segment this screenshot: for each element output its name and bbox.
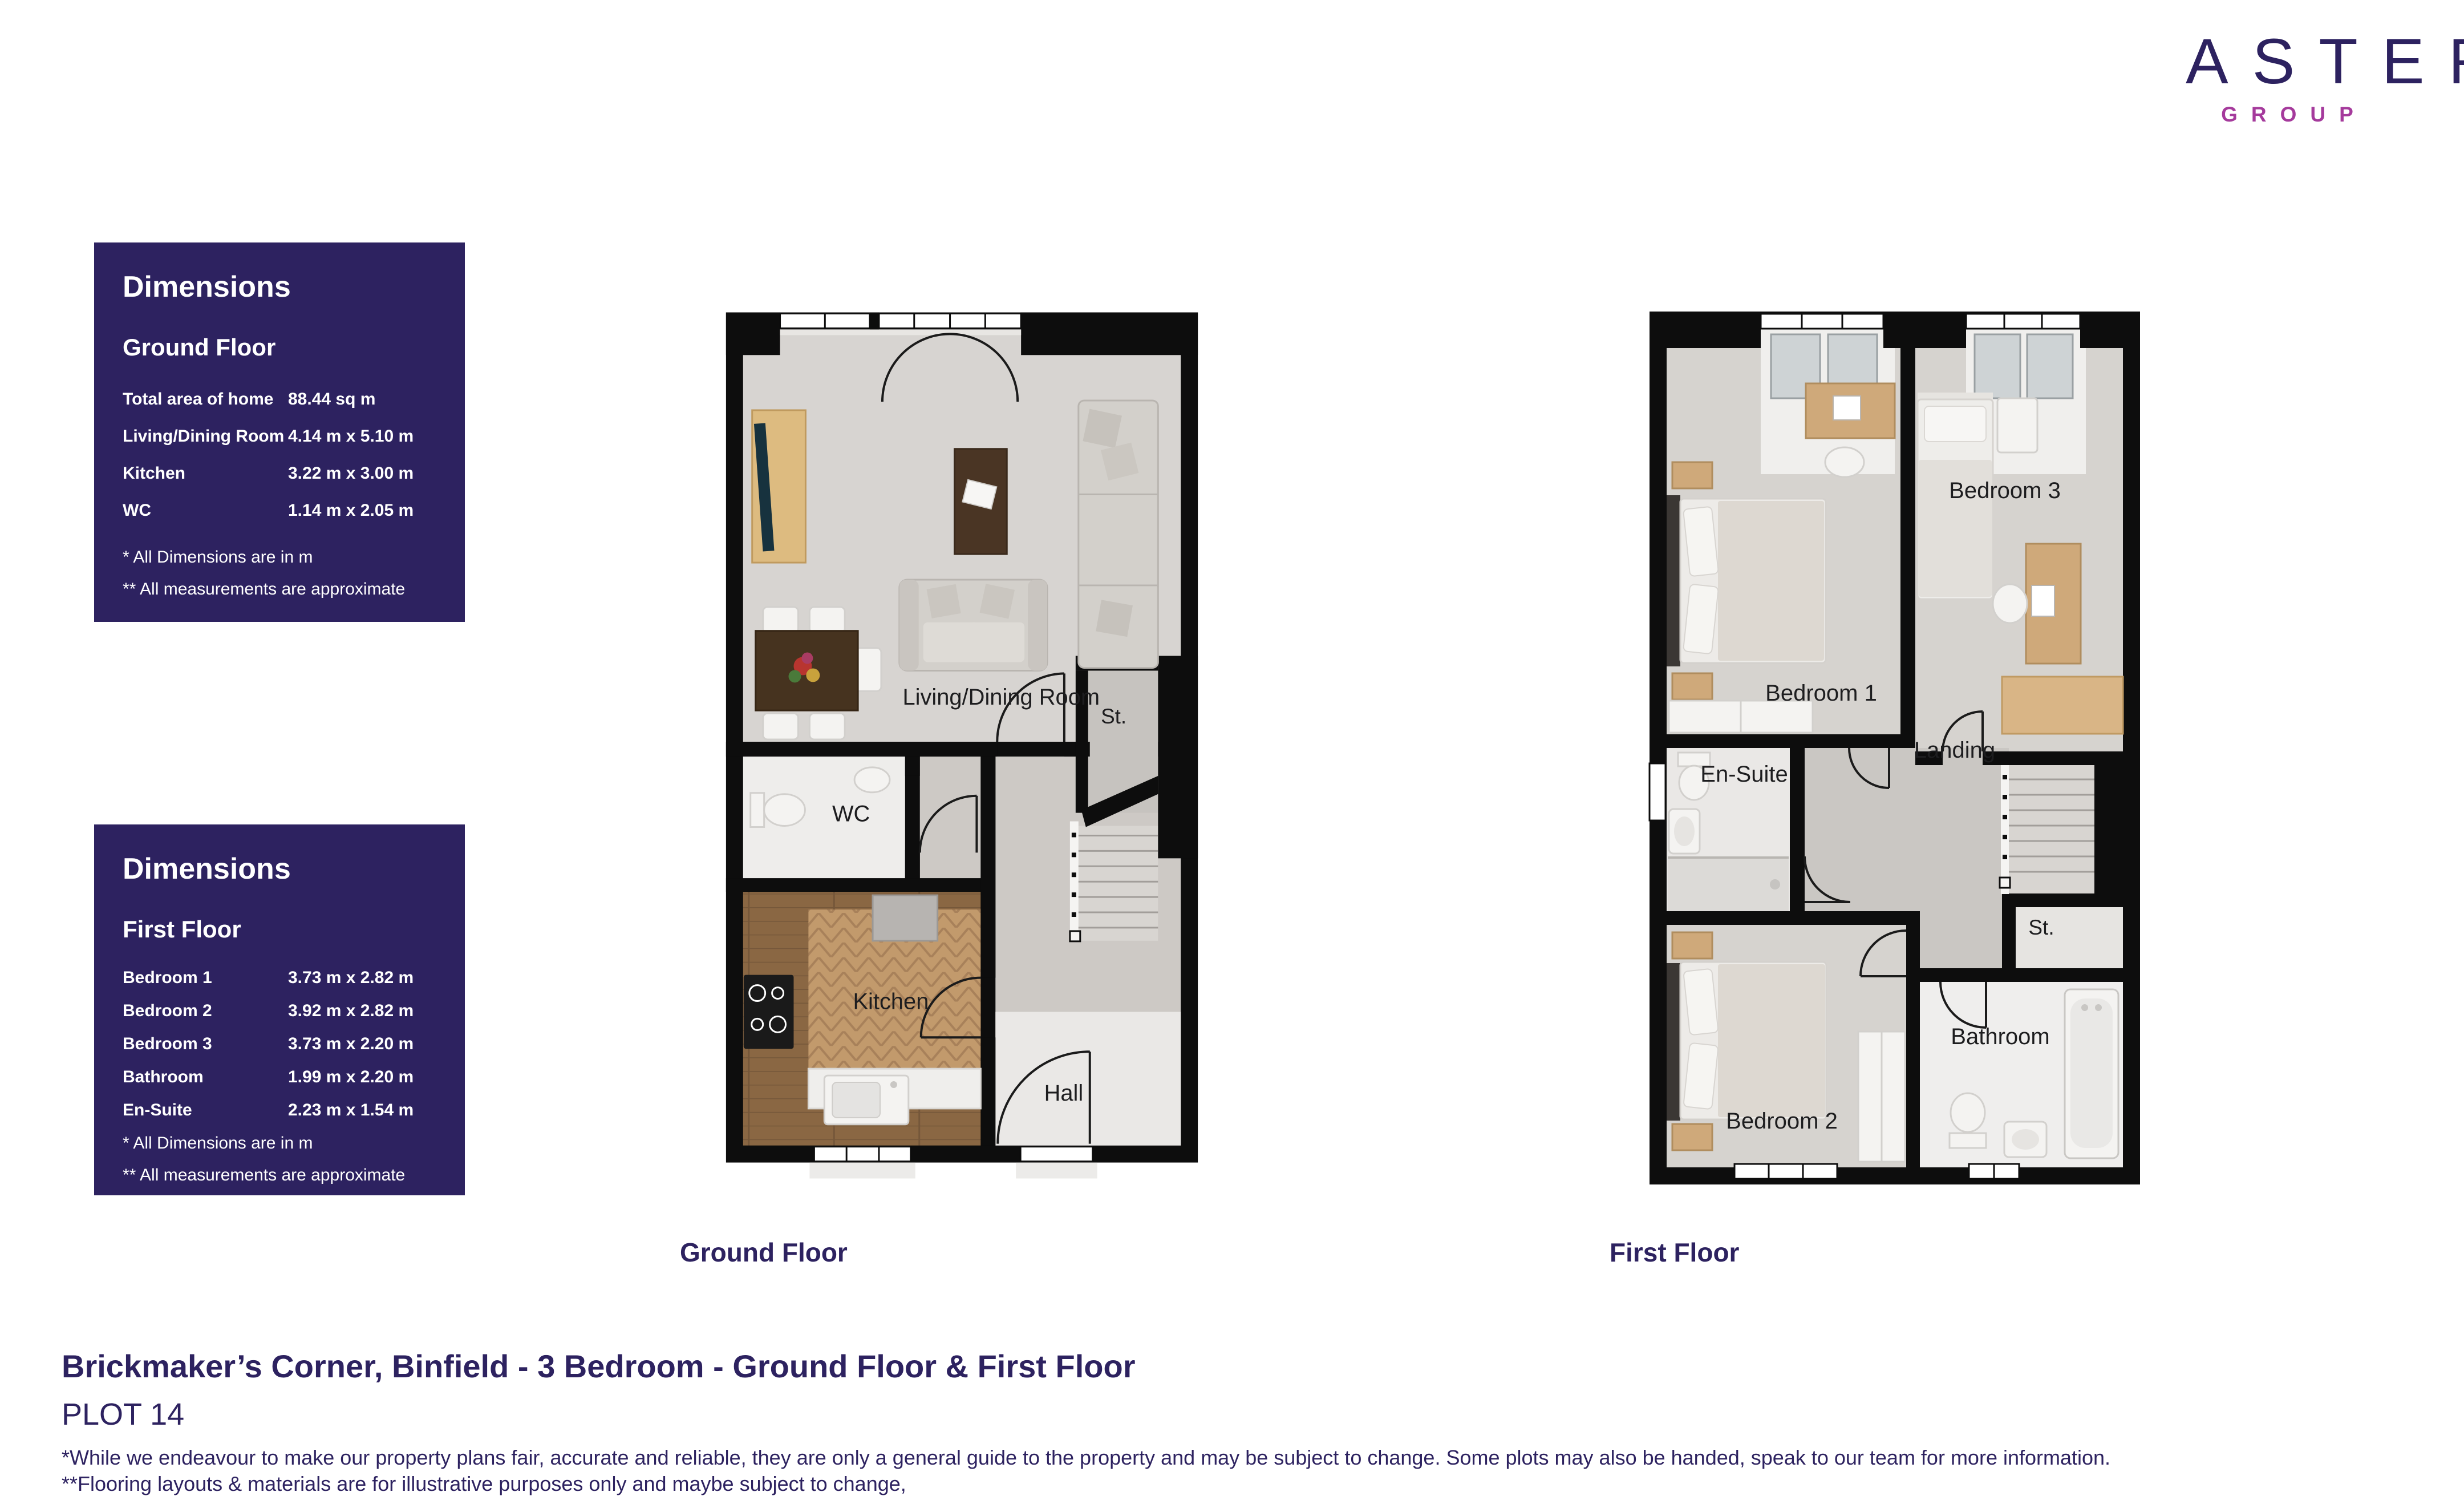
- shower-head: [1770, 879, 1780, 889]
- kitchen-window-icon: [814, 1147, 910, 1162]
- bedroom1-window-icon: [1761, 314, 1883, 329]
- dimension-row: Bathroom1.99 m x 2.20 m: [123, 1068, 436, 1087]
- room-label-bedroom3: Bedroom 3: [1949, 478, 2061, 503]
- toilet-icon: [1951, 1093, 1985, 1132]
- front-door-icon: [1020, 1147, 1093, 1162]
- dimension-row: Bedroom 23.92 m x 2.82 m: [123, 1001, 436, 1021]
- hob-icon: [744, 975, 794, 1049]
- room-label-kitchen: Kitchen: [853, 989, 929, 1014]
- laptop: [2032, 585, 2054, 616]
- laptop: [1833, 396, 1861, 420]
- aster-group-logo: ASTER GROUP: [2162, 30, 2413, 127]
- dimension-label: Bedroom 2: [123, 1001, 288, 1021]
- dimension-value: 3.22 m x 3.00 m: [288, 464, 436, 483]
- bed-headboard: [1667, 495, 1680, 666]
- room-label-wc: WC: [832, 802, 870, 827]
- desk-chair: [1993, 584, 2027, 623]
- page-title: Brickmaker’s Corner, Binfield - 3 Bedroo…: [62, 1348, 1135, 1385]
- panel-floor-name: Ground Floor: [123, 334, 436, 361]
- nightstand: [1672, 1124, 1712, 1150]
- nightstand: [1672, 462, 1712, 488]
- dimension-row: Bedroom 13.73 m x 2.82 m: [123, 968, 436, 988]
- dimension-row: Living/Dining Room4.14 m x 5.10 m: [123, 427, 436, 446]
- disclaimer-line-1: *While we endeavour to make our property…: [62, 1446, 2429, 1470]
- dimension-row: Kitchen3.22 m x 3.00 m: [123, 464, 436, 483]
- disclaimer-line-2: **Flooring layouts & materials are for i…: [62, 1472, 2429, 1496]
- panel-title: Dimensions: [123, 270, 436, 304]
- dimension-label: Bedroom 1: [123, 968, 288, 988]
- basin-icon: [854, 767, 890, 793]
- room-label-hall: Hall: [1044, 1081, 1084, 1106]
- toilet-icon: [764, 794, 805, 826]
- ensuite-window-icon: [1650, 763, 1665, 820]
- footnote: * All Dimensions are in m: [123, 548, 436, 567]
- toilet-cistern: [1950, 1133, 1986, 1148]
- panel-floor-name: First Floor: [123, 916, 436, 943]
- room-label-storage: St.: [2028, 916, 2054, 939]
- logo-wordmark: ASTER: [2162, 30, 2413, 94]
- footnote: ** All measurements are approximate: [123, 580, 436, 599]
- panel-footnotes: * All Dimensions are in m ** All measure…: [123, 548, 436, 599]
- dimension-value: 1.14 m x 2.05 m: [288, 501, 436, 520]
- dimension-rows: Total area of home88.44 sq m Living/Dini…: [123, 390, 436, 538]
- room-label-bathroom: Bathroom: [1951, 1024, 2049, 1049]
- chest: [2002, 677, 2123, 734]
- nightstand: [1672, 932, 1712, 959]
- room-label-ensuite: En-Suite: [1700, 762, 1788, 787]
- dimension-value: 3.73 m x 2.82 m: [288, 968, 436, 988]
- fridge-unit: [873, 895, 938, 941]
- dimension-value: 1.99 m x 2.20 m: [288, 1068, 436, 1087]
- dimension-label: Kitchen: [123, 464, 288, 483]
- footnote: ** All measurements are approximate: [123, 1166, 436, 1185]
- dimension-value: 88.44 sq m: [288, 390, 436, 409]
- footnote: * All Dimensions are in m: [123, 1134, 436, 1153]
- bedside-unit: [1997, 398, 2037, 452]
- dimensions-panel-ground-floor: Dimensions Ground Floor Total area of ho…: [94, 242, 465, 622]
- dimension-row: WC1.14 m x 2.05 m: [123, 501, 436, 520]
- ground-floor-caption: Ground Floor: [680, 1237, 848, 1268]
- panel-footnotes: * All Dimensions are in m ** All measure…: [123, 1134, 436, 1185]
- dimension-label: Bathroom: [123, 1068, 288, 1087]
- dimension-value: 4.14 m x 5.10 m: [288, 427, 436, 446]
- dimension-value: 3.92 m x 2.82 m: [288, 1001, 436, 1021]
- dimension-row: Bedroom 33.73 m x 2.20 m: [123, 1034, 436, 1054]
- dimension-row: En-Suite2.23 m x 1.54 m: [123, 1101, 436, 1120]
- room-label-bedroom1: Bedroom 1: [1765, 681, 1877, 706]
- room-label-storage: St.: [1101, 705, 1126, 728]
- ground-floor-plan: Living/Dining Room St. WC Kitchen Hall: [706, 305, 1218, 1184]
- dimension-label: Living/Dining Room: [123, 427, 288, 446]
- ground-floor-plan-svg: Living/Dining Room St. WC Kitchen Hall: [706, 305, 1218, 1184]
- desk-chair: [1825, 447, 1864, 477]
- panel-title: Dimensions: [123, 852, 436, 886]
- logo-subtitle: GROUP: [2162, 103, 2413, 127]
- plot-number: PLOT 14: [62, 1397, 184, 1432]
- dimension-label: WC: [123, 501, 288, 520]
- dimension-label: Total area of home: [123, 390, 288, 409]
- bedroom2-window-icon: [1734, 1164, 1837, 1179]
- first-floor-plan: Bedroom 1 Bedroom 3 Landing En-Suite St.…: [1632, 307, 2157, 1190]
- room-label-landing: Landing: [1914, 738, 1995, 763]
- first-floor-caption: First Floor: [1610, 1237, 1739, 1268]
- dimension-rows: Bedroom 13.73 m x 2.82 m Bedroom 23.92 m…: [123, 968, 436, 1134]
- dimension-label: En-Suite: [123, 1101, 288, 1120]
- dimension-label: Bedroom 3: [123, 1034, 288, 1054]
- toilet-cistern: [751, 793, 764, 827]
- nightstand: [1672, 673, 1712, 700]
- bedroom3-window-icon: [1966, 314, 2080, 329]
- dimensions-panel-first-floor: Dimensions First Floor Bedroom 13.73 m x…: [94, 824, 465, 1195]
- dimension-value: 2.23 m x 1.54 m: [288, 1101, 436, 1120]
- first-floor-plan-svg: Bedroom 1 Bedroom 3 Landing En-Suite St.…: [1632, 307, 2157, 1190]
- room-label-bedroom2: Bedroom 2: [1726, 1109, 1838, 1134]
- dimension-row: Total area of home88.44 sq m: [123, 390, 436, 409]
- bed-headboard: [1667, 963, 1680, 1121]
- dimension-value: 3.73 m x 2.20 m: [288, 1034, 436, 1054]
- room-label-living-dining: Living/Dining Room: [902, 685, 1100, 710]
